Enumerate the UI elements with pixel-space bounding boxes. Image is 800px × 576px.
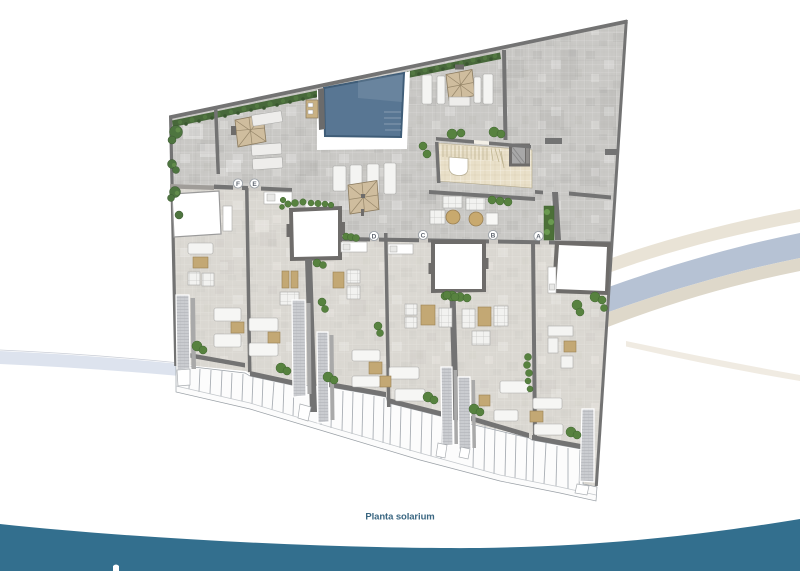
svg-text:F: F: [236, 181, 240, 188]
svg-text:A: A: [536, 233, 541, 240]
svg-text:C: C: [421, 232, 426, 239]
svg-text:D: D: [372, 233, 377, 240]
svg-text:E: E: [252, 181, 257, 188]
svg-text:Planta solarium: Planta solarium: [365, 512, 434, 523]
svg-text:B: B: [491, 232, 496, 239]
